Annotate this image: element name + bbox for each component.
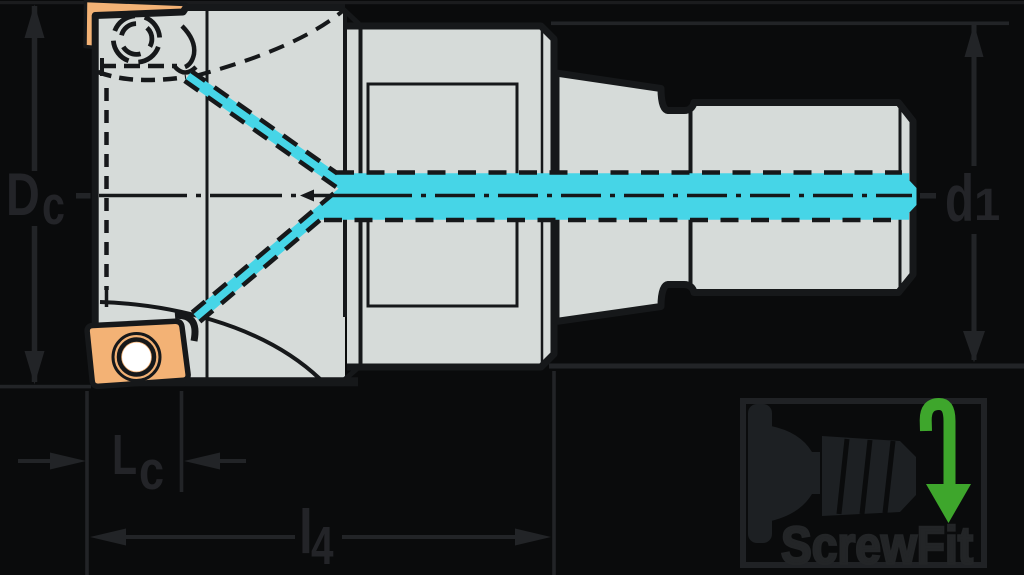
svg-text:1: 1 xyxy=(974,179,1000,230)
svg-text:d: d xyxy=(945,162,974,235)
svg-text:D: D xyxy=(6,161,40,228)
svg-text:ScrewFit: ScrewFit xyxy=(781,515,973,575)
svg-text:4: 4 xyxy=(311,516,334,575)
svg-text:c: c xyxy=(42,175,65,236)
svg-text:c: c xyxy=(139,439,164,501)
svg-text:L: L xyxy=(112,422,137,486)
